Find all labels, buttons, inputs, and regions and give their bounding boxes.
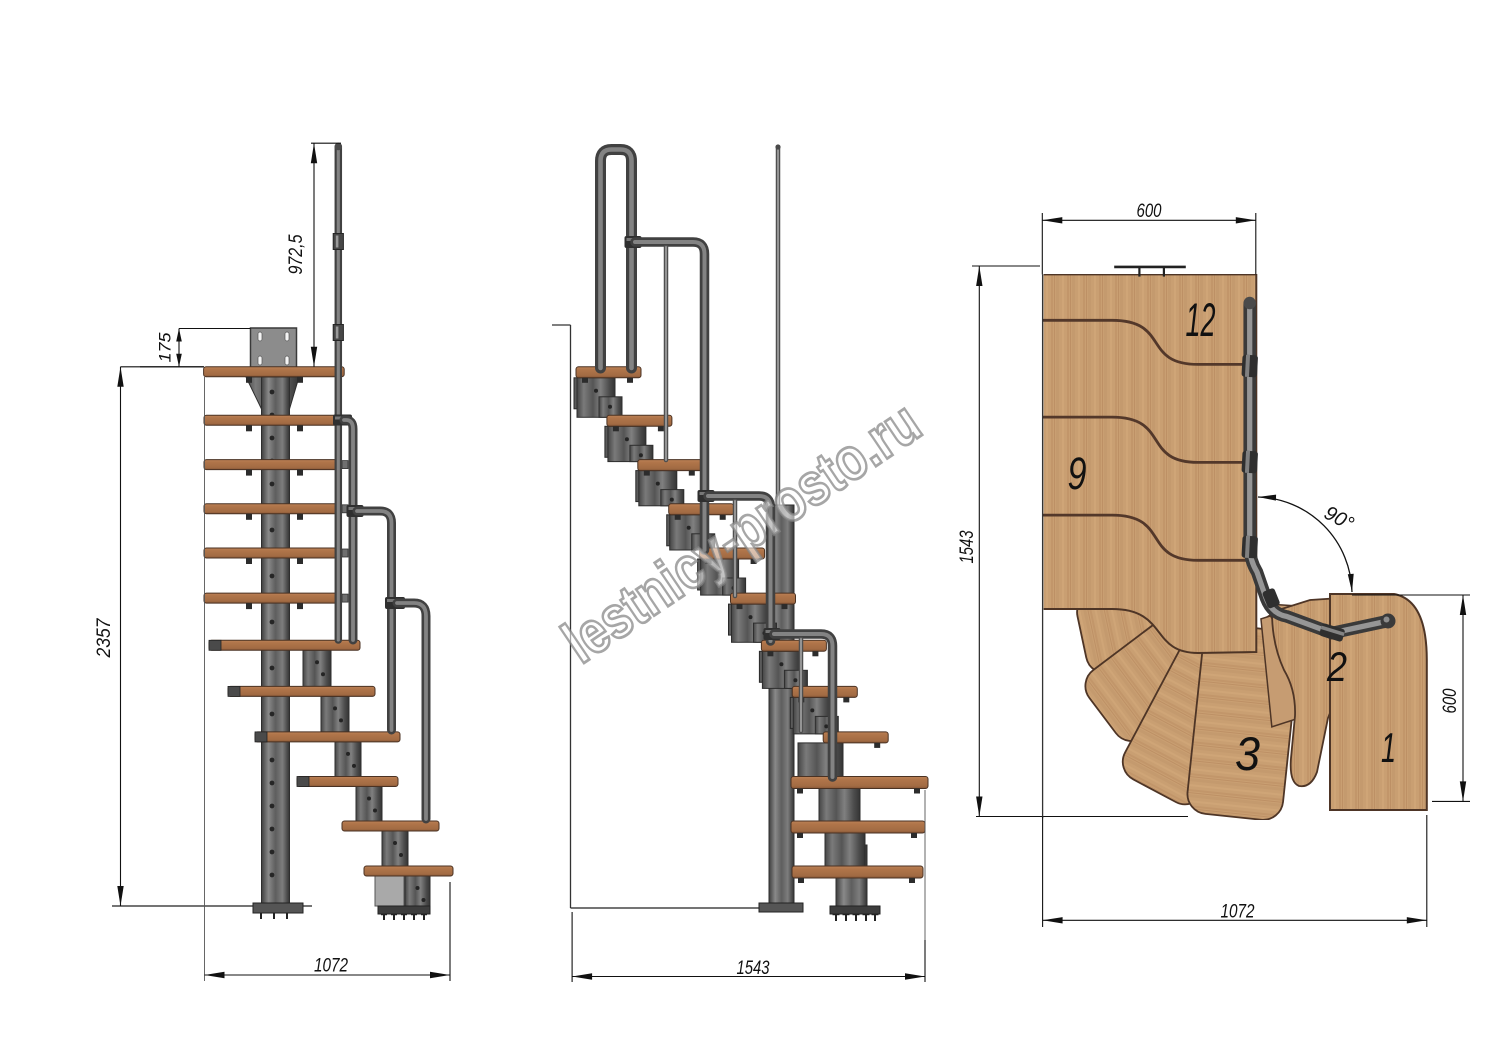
svg-text:1072: 1072 (314, 956, 348, 977)
svg-text:600: 600 (1137, 201, 1162, 222)
svg-text:1543: 1543 (737, 958, 770, 979)
svg-text:3: 3 (1235, 727, 1260, 780)
svg-text:9: 9 (1068, 448, 1087, 499)
svg-text:175: 175 (156, 332, 175, 363)
svg-text:972,5: 972,5 (286, 234, 307, 274)
svg-text:1: 1 (1381, 724, 1396, 771)
svg-text:2: 2 (1326, 643, 1347, 690)
svg-text:12: 12 (1186, 293, 1216, 346)
svg-text:600: 600 (1440, 688, 1461, 713)
svg-text:1072: 1072 (1221, 902, 1255, 923)
svg-text:2357: 2357 (94, 617, 115, 658)
svg-text:1543: 1543 (957, 530, 978, 563)
